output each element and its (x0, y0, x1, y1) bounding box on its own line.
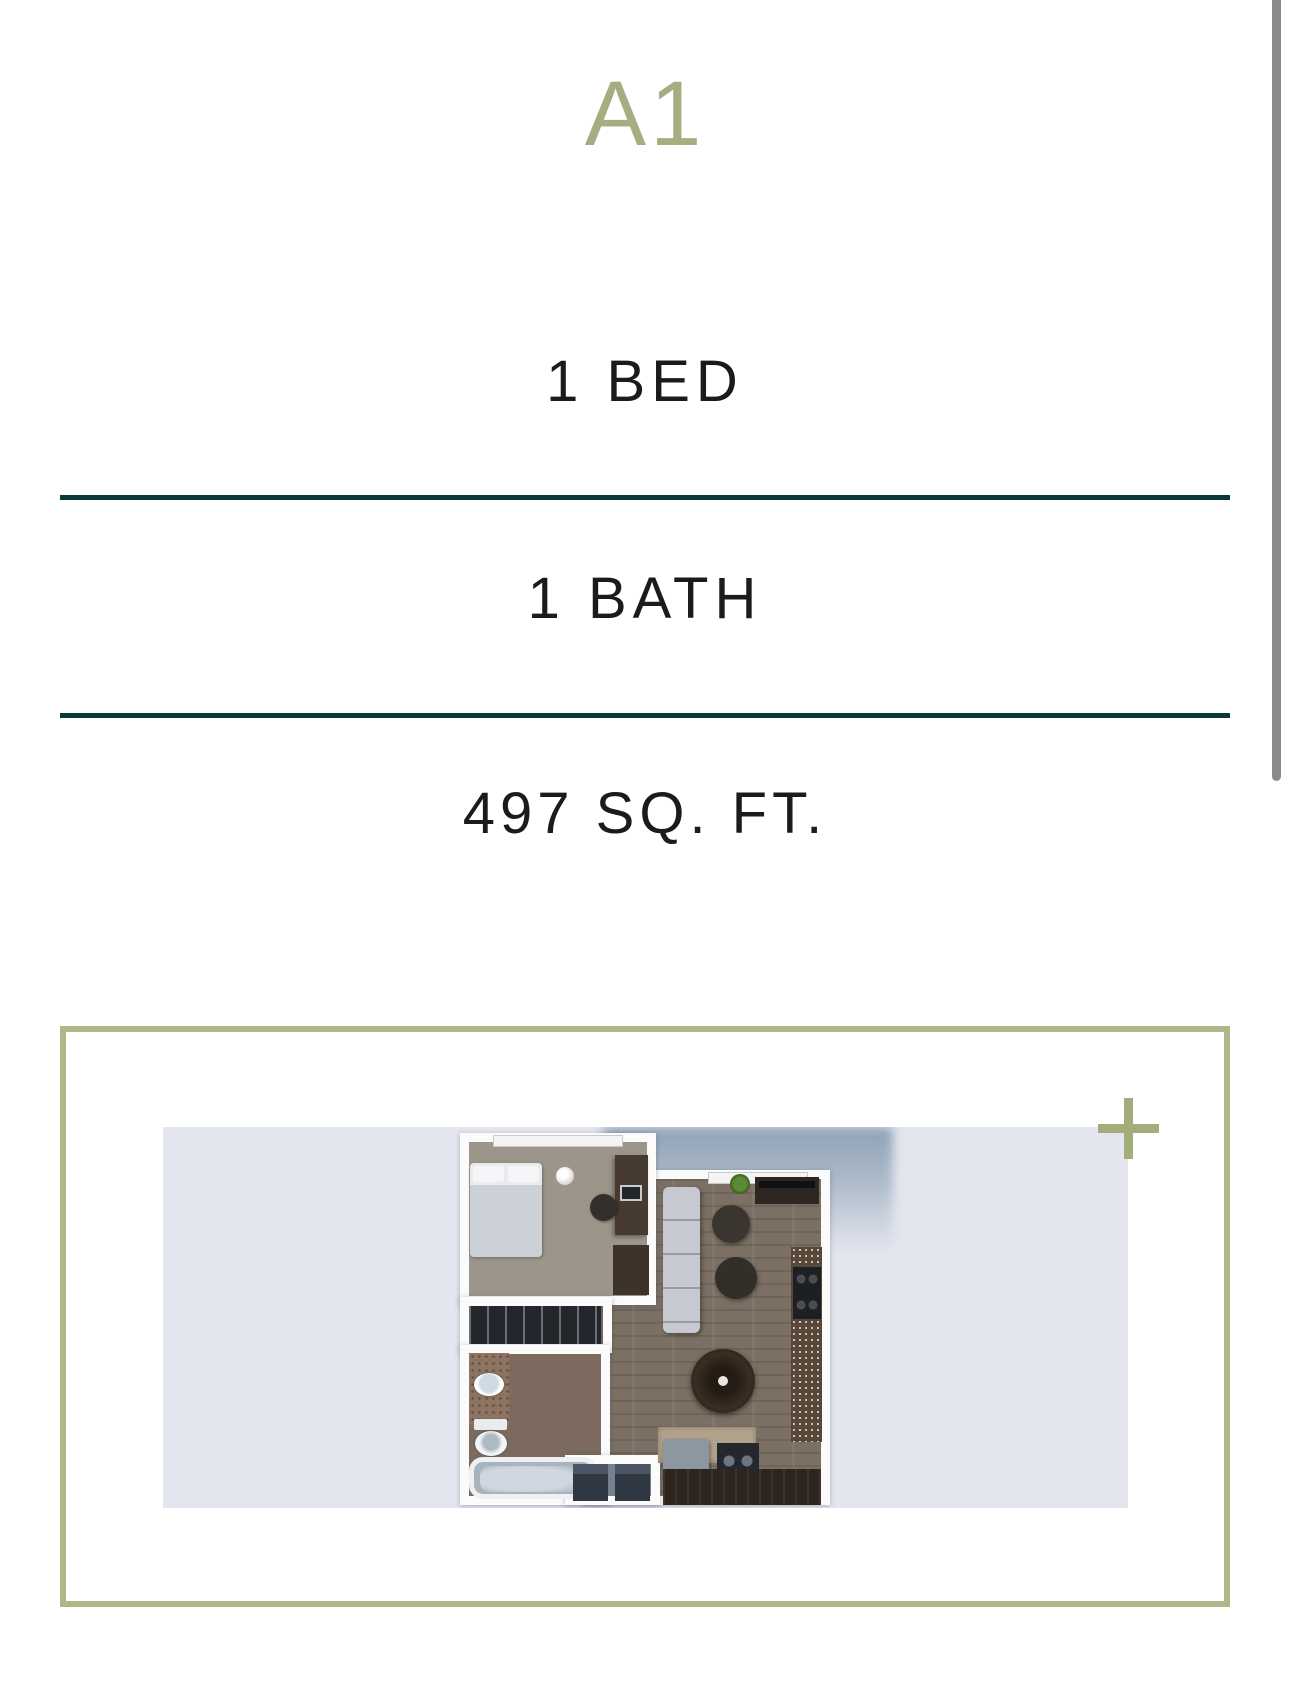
laptop (620, 1185, 642, 1201)
toilet (474, 1419, 507, 1430)
sqft-spec: 497 SQ. FT. (0, 781, 1290, 848)
floor-plan-panel (60, 1026, 1230, 1607)
floor-plan-image[interactable] (163, 1127, 1128, 1508)
bathtub-well (480, 1466, 580, 1492)
round-chair (715, 1257, 757, 1299)
toilet (475, 1431, 507, 1456)
beds-spec: 1 BED (0, 349, 1290, 416)
divider-line (60, 713, 1230, 718)
divider-line (60, 495, 1230, 500)
sofa (663, 1187, 700, 1333)
desk-chair (590, 1194, 617, 1221)
plus-icon (1124, 1098, 1133, 1159)
sink (474, 1373, 504, 1396)
bedroom-window (493, 1135, 623, 1147)
pillow (508, 1166, 539, 1182)
table-centerpiece (718, 1376, 728, 1386)
floor-plan-title: A1 (0, 64, 1290, 165)
round-chair (712, 1205, 750, 1243)
dining-table (691, 1349, 755, 1413)
scrollbar-thumb[interactable] (1272, 0, 1281, 781)
plant (730, 1174, 750, 1194)
pillow (473, 1166, 504, 1182)
tv (759, 1181, 815, 1188)
closet-shelves (469, 1306, 601, 1344)
zoom-plus-button[interactable] (1098, 1098, 1159, 1159)
kitchen-island (663, 1469, 821, 1505)
washer (573, 1464, 608, 1501)
dresser (613, 1245, 649, 1295)
lamp (556, 1167, 574, 1185)
dryer (615, 1464, 650, 1501)
stove (793, 1267, 821, 1319)
baths-spec: 1 BATH (0, 566, 1290, 633)
